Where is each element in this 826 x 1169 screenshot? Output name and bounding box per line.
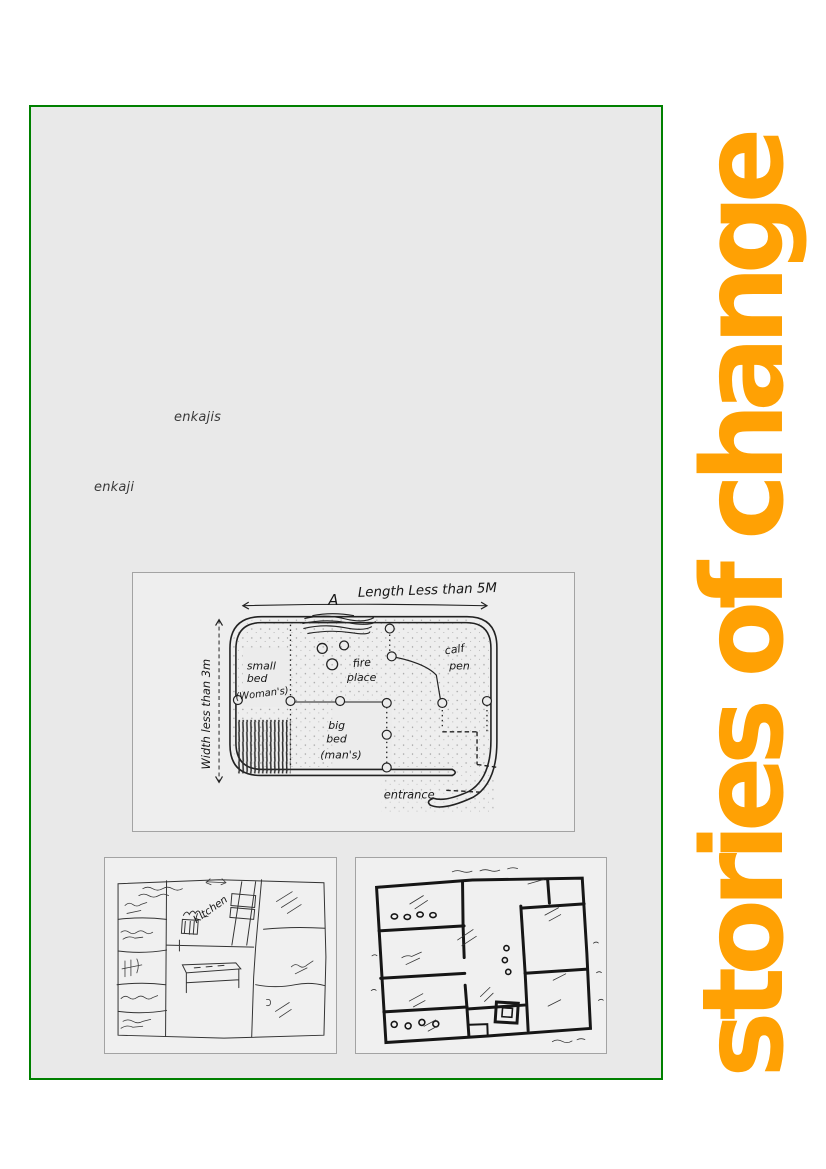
document-page: enkajis enkaji: [0, 0, 826, 1169]
label-marker-a: A: [327, 591, 338, 609]
sketch-left-furniture: [181, 911, 240, 993]
sketch-right-walls: [376, 876, 590, 1043]
enkaji-floor-plan-drawing: A Length Less than 5M Width less than 3m…: [133, 573, 574, 831]
italic-word-enkaji: enkaji: [94, 480, 134, 495]
sketch-right-drawing: [356, 858, 606, 1053]
label-big-bed-2: bed: [326, 733, 347, 746]
label-fire-2: place: [346, 671, 377, 684]
label-small-bed-2: bed: [247, 672, 268, 685]
label-kitchen: Kitchen: [191, 894, 230, 926]
italic-word-enkajis: enkajis: [174, 410, 221, 425]
sketch-right-handwriting-squiggles: [367, 865, 605, 1050]
label-small-bed-1: small: [247, 659, 276, 672]
label-calf-2: pen: [448, 659, 470, 672]
vertical-banner-title: stories of change: [688, 136, 800, 1078]
label-entrance: entrance: [384, 787, 435, 801]
label-big-bed-3: (man's): [320, 749, 361, 762]
figure-sketch-right: [355, 857, 607, 1054]
label-width: Width less than 3m: [199, 659, 213, 770]
label-fire-1: fire: [352, 656, 372, 671]
report-page-panel: enkajis enkaji: [29, 105, 663, 1080]
label-big-bed-1: big: [328, 719, 345, 732]
figure-sketch-left: Kitchen: [104, 857, 337, 1054]
figure-enkaji-floor-plan: A Length Less than 5M Width less than 3m…: [132, 572, 575, 832]
hatched-bed-area: [237, 720, 291, 774]
sketch-left-drawing: Kitchen: [105, 858, 336, 1053]
label-length: Length Less than 5M: [358, 581, 498, 601]
